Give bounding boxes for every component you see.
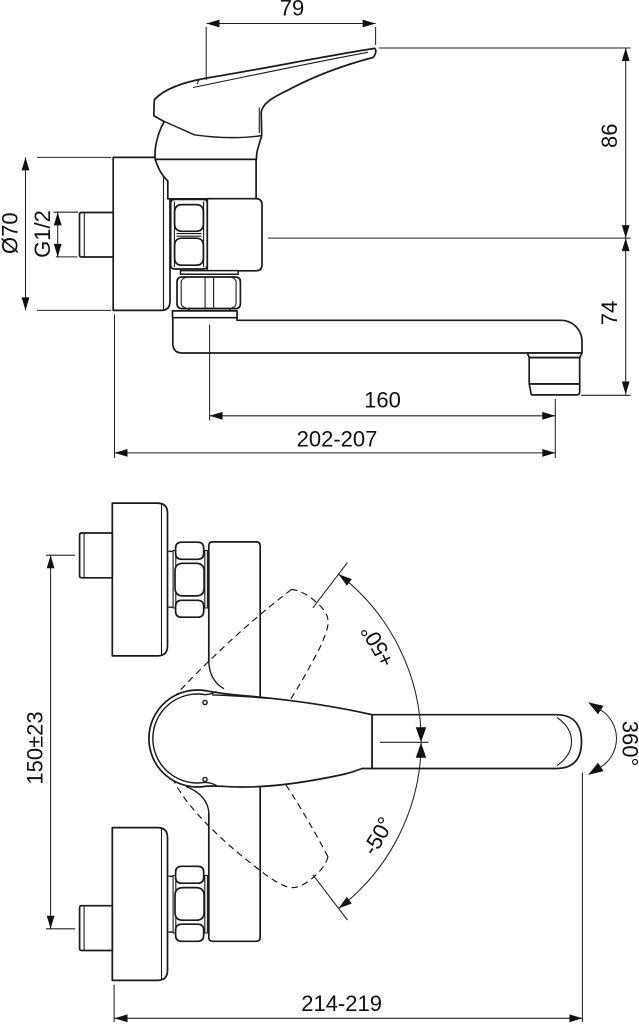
svg-text:214-219: 214-219 [301,991,382,1016]
svg-text:Ø70: Ø70 [0,212,22,254]
svg-text:74: 74 [597,301,622,325]
svg-text:150±23: 150±23 [23,711,48,784]
svg-text:202-207: 202-207 [297,427,378,452]
svg-text:86: 86 [597,123,622,147]
svg-text:G1/2: G1/2 [30,210,55,258]
svg-text:360°: 360° [618,721,639,767]
svg-text:79: 79 [280,0,304,20]
svg-text:160: 160 [364,387,401,412]
